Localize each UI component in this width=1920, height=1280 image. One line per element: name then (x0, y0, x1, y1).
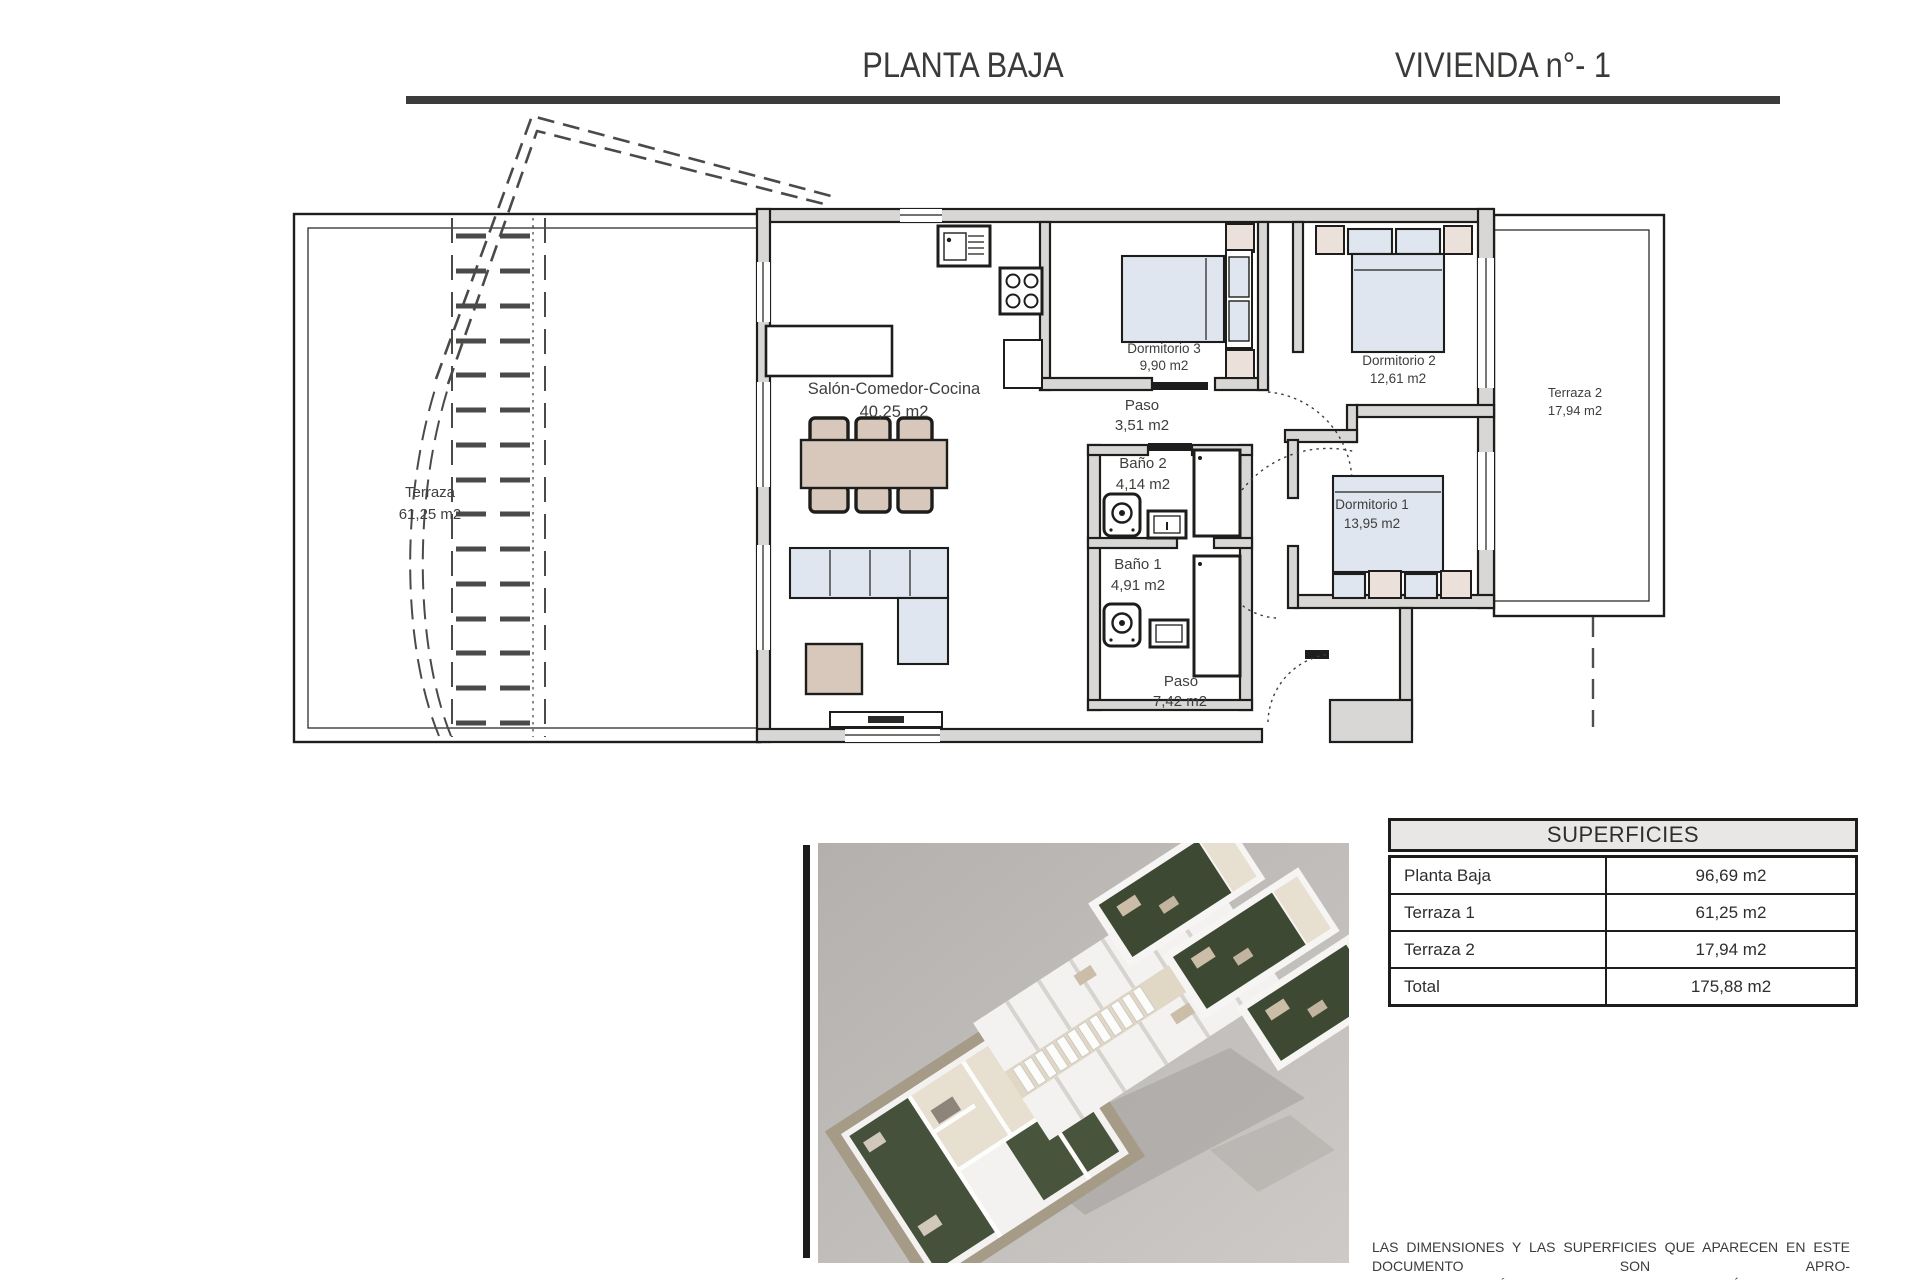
room-label-terraza1: Terraza (405, 484, 456, 501)
dining-set (801, 418, 947, 512)
row-value: 17,94 m2 (1607, 932, 1855, 967)
room-area-bano2: 4,14 m2 (1116, 476, 1170, 493)
pergola-dashed-slats (410, 218, 545, 737)
room-area-salon: 40,25 m2 (860, 403, 929, 421)
room-area-dormitorio2: 12,61 m2 (1370, 371, 1426, 386)
kitchen-sink-unit (938, 226, 990, 266)
row-value: 61,25 m2 (1607, 895, 1855, 930)
room-label-salon: Salón-Comedor-Cocina (808, 380, 981, 398)
row-label: Terraza 2 (1391, 932, 1607, 967)
table-row: Terraza 2 17,94 m2 (1391, 932, 1855, 969)
disclaimer-text: LAS DIMENSIONES Y LAS SUPERFICIES QUE AP… (1372, 1238, 1850, 1280)
room-label-dormitorio2: Dormitorio 2 (1362, 353, 1436, 368)
room-label-paso1: Paso (1125, 397, 1159, 414)
stove-icon (1000, 268, 1042, 388)
terrace-2-outline (1494, 215, 1664, 727)
room-label-bano1: Baño 1 (1114, 556, 1162, 573)
room-label-terraza2: Terraza 2 (1548, 385, 1602, 400)
sideboard (766, 326, 892, 376)
bathroom-1-fixtures (1104, 556, 1240, 676)
render-divider-bar (803, 845, 810, 1258)
room-area-dormitorio1: 13,95 m2 (1344, 516, 1400, 531)
floor-plan-drawing: Terraza 61,25 m2 Salón-Comedor-Cocina 40… (0, 0, 1920, 1280)
coffee-table (806, 644, 862, 694)
row-label: Terraza 1 (1391, 895, 1607, 930)
room-area-bano1: 4,91 m2 (1111, 577, 1165, 594)
table-row: Total 175,88 m2 (1391, 969, 1855, 1004)
plan-sheet: PLANTA BAJA VIVIENDA n°- 1 (0, 0, 1920, 1280)
superficies-table: SUPERFICIES Planta Baja 96,69 m2 Terraza… (1388, 818, 1858, 1007)
row-label: Planta Baja (1391, 858, 1607, 893)
room-area-paso2: 7,42 m2 (1153, 693, 1207, 710)
tv-unit (830, 712, 942, 727)
room-area-paso1: 3,51 m2 (1115, 417, 1169, 434)
room-area-terraza2: 17,94 m2 (1548, 403, 1602, 418)
disclaimer-line-2: XIMADAS Y PODRÁN SER OBJETO DE MODIFICAC… (1372, 1276, 1850, 1280)
superficies-table-body: Planta Baja 96,69 m2 Terraza 1 61,25 m2 … (1388, 855, 1858, 1007)
row-label: Total (1391, 969, 1607, 1004)
room-area-dormitorio3: 9,90 m2 (1140, 358, 1189, 373)
room-label-bano2: Baño 2 (1119, 455, 1167, 472)
superficies-table-title: SUPERFICIES (1388, 818, 1858, 852)
row-value: 175,88 m2 (1607, 969, 1855, 1004)
table-row: Terraza 1 61,25 m2 (1391, 895, 1855, 932)
disclaimer-line-1: LAS DIMENSIONES Y LAS SUPERFICIES QUE AP… (1372, 1238, 1850, 1276)
room-label-dormitorio1: Dormitorio 1 (1335, 497, 1409, 512)
row-value: 96,69 m2 (1607, 858, 1855, 893)
table-row: Planta Baja 96,69 m2 (1391, 858, 1855, 895)
bed-dormitorio-2 (1316, 226, 1472, 352)
room-label-dormitorio3: Dormitorio 3 (1127, 341, 1201, 356)
axonometric-render-image (818, 778, 1414, 1280)
room-area-terraza1: 61,25 m2 (399, 506, 462, 523)
room-label-paso2: Paso (1164, 673, 1198, 690)
bed-dormitorio-1 (1333, 476, 1471, 598)
